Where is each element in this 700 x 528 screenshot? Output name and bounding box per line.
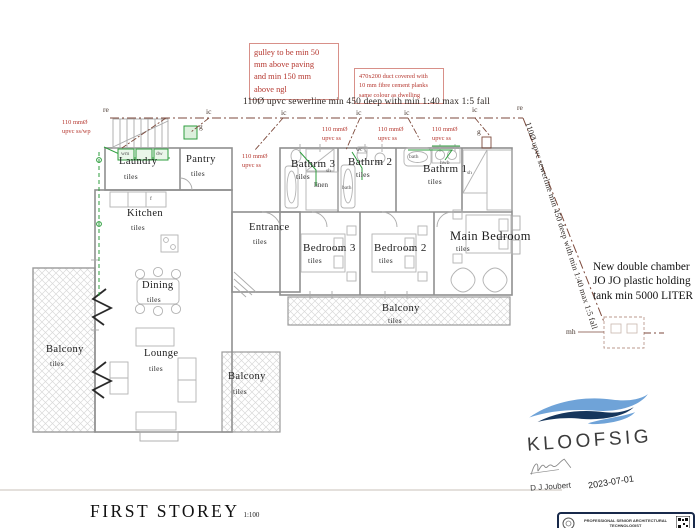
room-label-balcony-mid: Balcony xyxy=(382,303,420,314)
room-label-bedroom3: Bedroom 3 xyxy=(303,242,356,254)
room-label-balcony-left: Balcony xyxy=(46,344,84,355)
floor-label-main-bedroom: tiles xyxy=(456,244,470,253)
sewer-marker-re-2: re xyxy=(517,103,523,112)
room-label-main-bedroom: Main Bedroom xyxy=(450,229,531,244)
fixture-label-hwb-b1: hwb xyxy=(440,160,449,166)
fixture-label-bath-b1: bath xyxy=(409,154,418,160)
fixture-label-shower-b1: sh xyxy=(467,170,472,176)
floor-label-bathrm2: tiles xyxy=(356,170,370,179)
floor-label-bedroom2: tiles xyxy=(379,256,393,265)
label-upvc-ss-2: 110 mmØ upvc ss xyxy=(322,126,348,144)
fixture-label-shower-b3: sh xyxy=(326,168,331,174)
floor-label-bathrm3: tiles xyxy=(296,172,310,181)
floor-label-bathrm1: tiles xyxy=(428,177,442,186)
fixture-label-fridge: f xyxy=(150,196,152,202)
fixture-label-washer: wm xyxy=(121,151,129,157)
floor-label-laundry: tiles xyxy=(124,172,138,181)
floor-label-bedroom3: tiles xyxy=(308,256,322,265)
note-holding-tank: New double chamber JO JO plastic holding… xyxy=(593,260,700,303)
logo-block: KLOOFSIG D J Joubert 2023-07-01 xyxy=(524,388,665,492)
sewer-marker-re-1: re xyxy=(103,105,109,114)
fixture-label-dishwasher: dw xyxy=(156,151,163,157)
room-label-kitchen: Kitchen xyxy=(127,208,163,219)
floor-label-kitchen: tiles xyxy=(131,223,145,232)
sewer-marker-mh: mh xyxy=(566,327,576,336)
fixture-label-bath-b2: bath xyxy=(342,185,351,191)
sewer-marker-ic-5: ic xyxy=(472,105,477,114)
room-label-dining: Dining xyxy=(142,280,174,291)
sewer-marker-ic-2: ic xyxy=(281,108,286,117)
fixture-label-wc-b2: wc xyxy=(356,147,362,153)
sewer-marker-ic-4: ic xyxy=(404,108,409,117)
floor-label-balcony-left: tiles xyxy=(50,359,64,368)
sheet-scale: 1:100 xyxy=(243,511,259,519)
stamp-qr-icon xyxy=(676,516,690,528)
sheet-title-group: FIRST STOREY 1:100 xyxy=(90,501,259,522)
room-label-bathrm2: Bathrm 2 xyxy=(348,156,392,168)
professional-stamp: PROFESSIONAL SENIOR ARCHITECTURAL TECHNO… xyxy=(557,512,695,528)
note-gulley: gulley to be min 50 mm above paving and … xyxy=(249,43,339,100)
floor-label-entrance: tiles xyxy=(253,237,267,246)
floor-label-lounge: tiles xyxy=(149,364,163,373)
room-label-lounge: Lounge xyxy=(144,348,178,359)
sheet-title: FIRST STOREY xyxy=(90,501,239,521)
room-label-pantry: Pantry xyxy=(186,154,216,165)
label-upvc-ss-1: 110 mmØ upvc ss xyxy=(242,153,268,171)
label-upvc-ss-wp: 110 mmØ upvc ss/wp xyxy=(62,119,91,137)
room-label-balcony-small: Balcony xyxy=(228,371,266,382)
room-label-laundry: Laundry xyxy=(119,156,157,167)
stamp-emblem-icon xyxy=(562,517,575,528)
room-label-bedroom2: Bedroom 2 xyxy=(374,242,427,254)
floor-label-balcony-mid: tiles xyxy=(388,316,402,325)
stairs xyxy=(113,119,168,148)
stamp-text: PROFESSIONAL SENIOR ARCHITECTURAL TECHNO… xyxy=(578,518,673,528)
sewer-marker-ic-1: ic xyxy=(206,107,211,116)
floor-label-balcony-small: tiles xyxy=(233,387,247,396)
floor-label-pantry: tiles xyxy=(191,169,205,178)
room-label-linen: linen xyxy=(314,181,328,189)
room-label-entrance: Entrance xyxy=(249,222,290,233)
floor-label-dining: tiles xyxy=(147,295,161,304)
label-upvc-ss-3: 110 mmØ upvc ss xyxy=(378,126,404,144)
sewer-marker-ic-3: ic xyxy=(356,108,361,117)
note-sewerline-top: 110Ø upvc sewerline min 450 deep with mi… xyxy=(243,97,490,107)
signature xyxy=(528,456,573,479)
sewer-marker-g-1: g xyxy=(199,122,203,131)
label-upvc-ss-4: 110 mmØ upvc ss xyxy=(432,126,458,144)
floor-plan-sheet: gulley to be min 50 mm above paving and … xyxy=(0,0,700,528)
sewer-marker-g-2: g xyxy=(477,127,481,136)
